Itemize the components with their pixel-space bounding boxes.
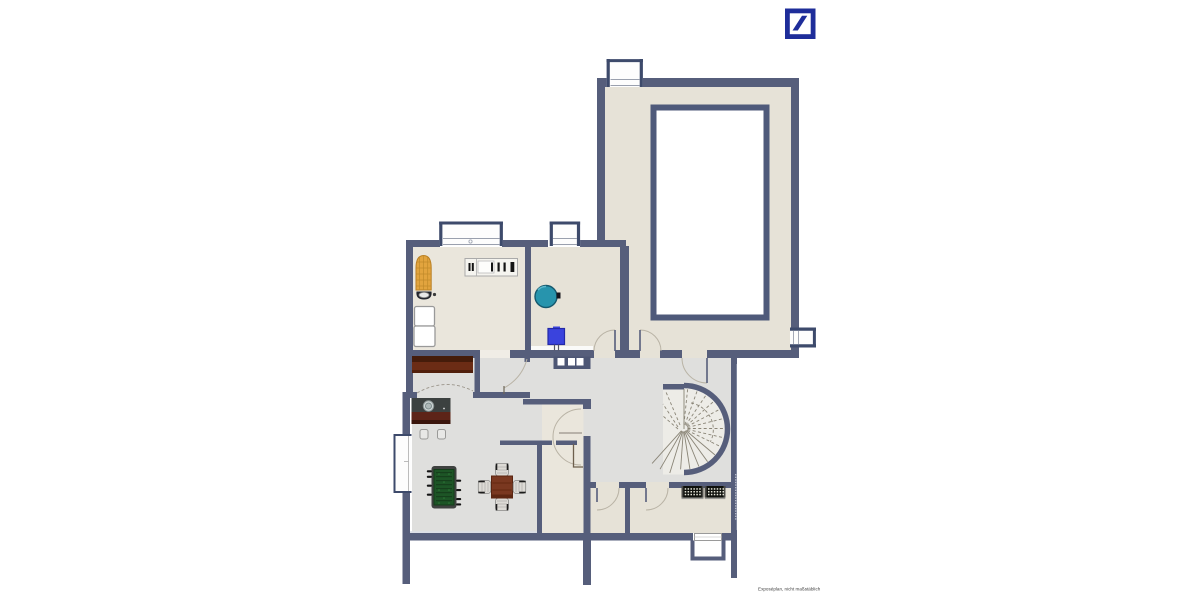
- svg-text:Exposéplan, nicht maßstäblich: Exposéplan, nicht maßstäblich: [758, 587, 821, 592]
